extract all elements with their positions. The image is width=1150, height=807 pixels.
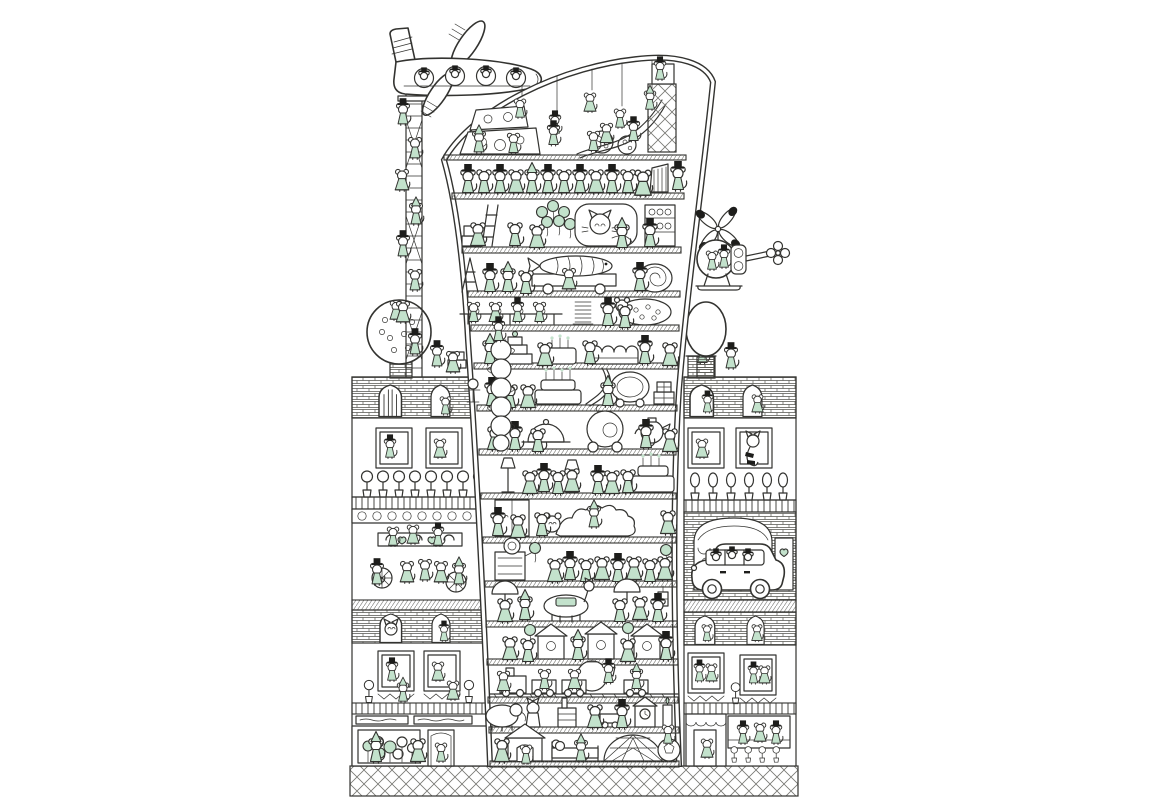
mouse-character (409, 269, 423, 291)
right-roof-2 (684, 612, 796, 645)
mouse-tower-illustration (0, 0, 1150, 807)
flower-tail-rotor (767, 242, 790, 265)
mouse-character (409, 137, 423, 159)
right-building (684, 302, 796, 766)
standing-cat (526, 698, 540, 727)
mouse-character (397, 230, 411, 257)
mouse-character (725, 342, 739, 369)
right-road-band (684, 600, 796, 612)
left-railing-2 (352, 703, 490, 714)
right-railing-2 (684, 703, 796, 714)
mouse-character (431, 340, 445, 367)
left-railing-1 (352, 497, 490, 509)
helicopter (694, 205, 790, 290)
mouse-character (395, 169, 410, 191)
left-roof-2 (352, 610, 490, 643)
main-tower (444, 56, 713, 767)
illustration-stage (0, 0, 1150, 807)
flower-shop (352, 716, 490, 766)
presents (654, 382, 674, 404)
left-road-band (352, 600, 490, 610)
right-roof-1 (684, 377, 796, 418)
carriage-frame (611, 372, 649, 407)
pavement (350, 766, 798, 796)
stall-house (535, 622, 663, 659)
mouse-character (397, 98, 411, 125)
right-railing-1 (684, 500, 796, 512)
